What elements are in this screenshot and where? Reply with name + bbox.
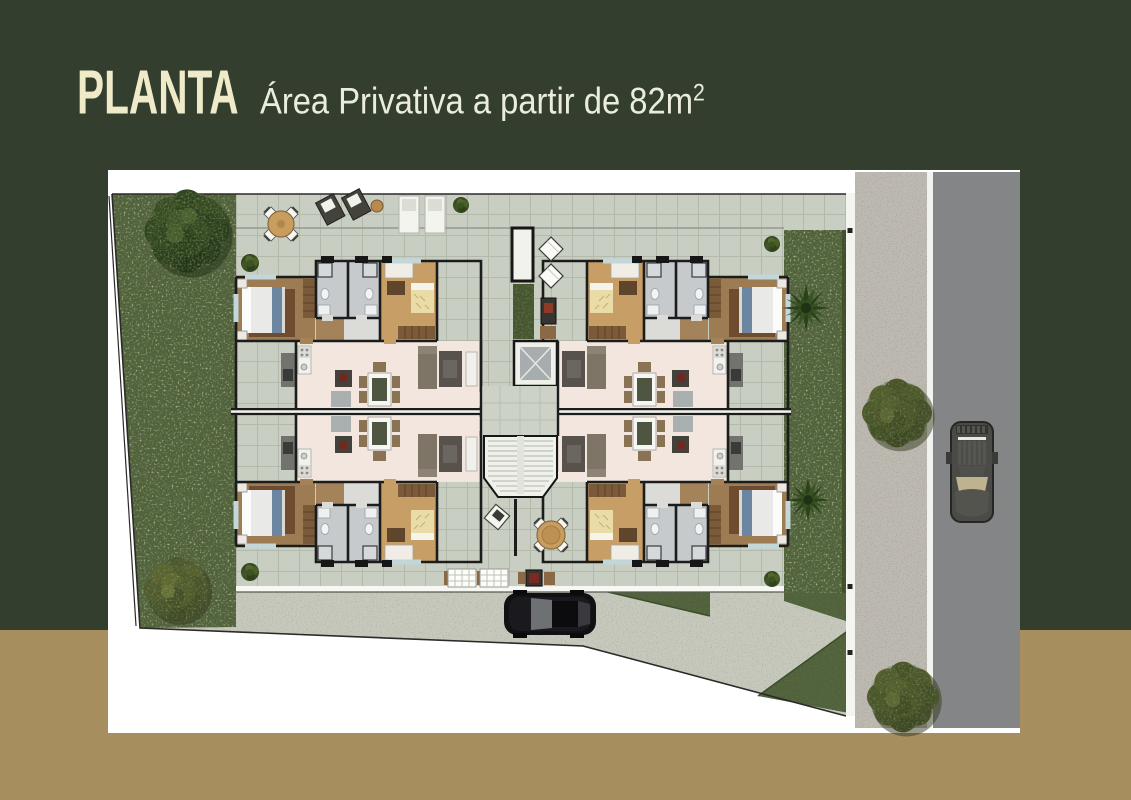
- svg-text:PLANTA: PLANTA: [77, 59, 239, 128]
- svg-text:Área Privativa a partir de 82m: Área Privativa a partir de 82m2: [260, 78, 705, 122]
